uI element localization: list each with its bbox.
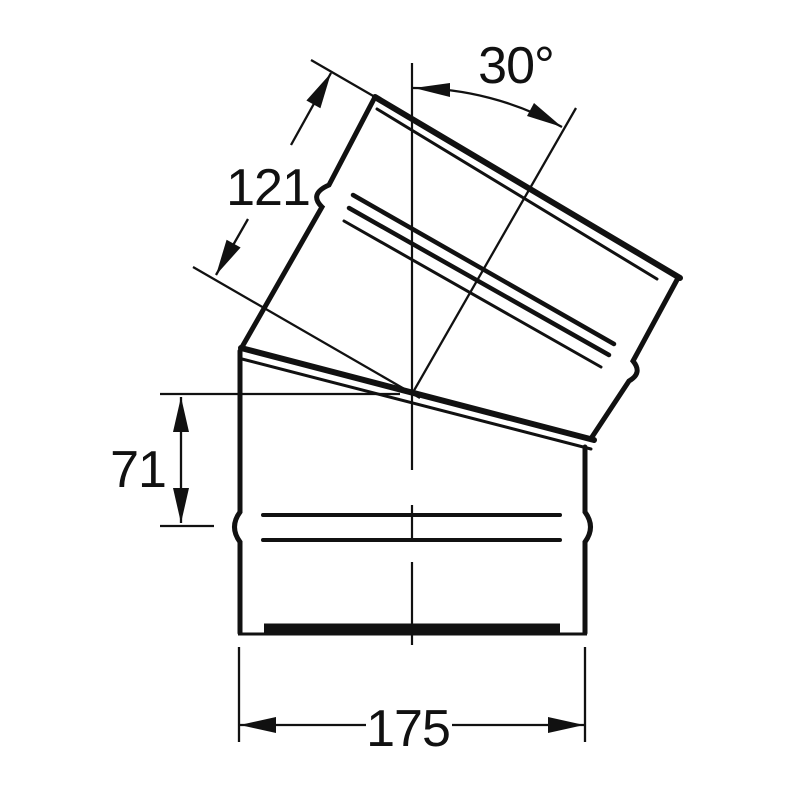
technical-drawing-page: 121 30° 71 175 [0, 0, 800, 800]
dimension-71: 71 [110, 394, 400, 526]
dimension-121-label: 121 [226, 159, 310, 217]
joint-seam [241, 348, 594, 449]
lower-segment-right-edge [585, 447, 591, 633]
upper-segment-rim-inner-line [377, 109, 657, 279]
upper-pipe-segment [242, 97, 680, 437]
upper-segment-right-edge [592, 278, 678, 437]
seam-line-inner [242, 359, 591, 449]
arrowhead-121-top [306, 73, 331, 108]
upper-segment-bead-line-2 [349, 208, 609, 355]
arrowhead-71-up [173, 397, 189, 432]
dimension-121-extension-bottom [193, 267, 420, 398]
upper-segment-bead-line-3 [344, 221, 601, 367]
dimension-angle-30: 30° [413, 37, 562, 127]
dimension-71-label: 71 [110, 441, 166, 499]
arrowhead-71-down [173, 488, 189, 523]
arrowhead-175-right [548, 717, 584, 733]
dimension-175: 175 [239, 647, 585, 758]
upper-segment-axis-line [412, 108, 576, 394]
upper-segment-left-edge [242, 97, 375, 347]
arrowhead-angle-left [414, 83, 450, 97]
pipe-elbow-30deg-drawing: 121 30° 71 175 [0, 0, 800, 800]
dimension-angle-label: 30° [478, 37, 554, 95]
arrowhead-121-bottom [216, 240, 241, 275]
arrowhead-angle-right [527, 103, 562, 127]
arrowhead-175-left [240, 717, 276, 733]
dimension-175-label: 175 [366, 700, 450, 758]
